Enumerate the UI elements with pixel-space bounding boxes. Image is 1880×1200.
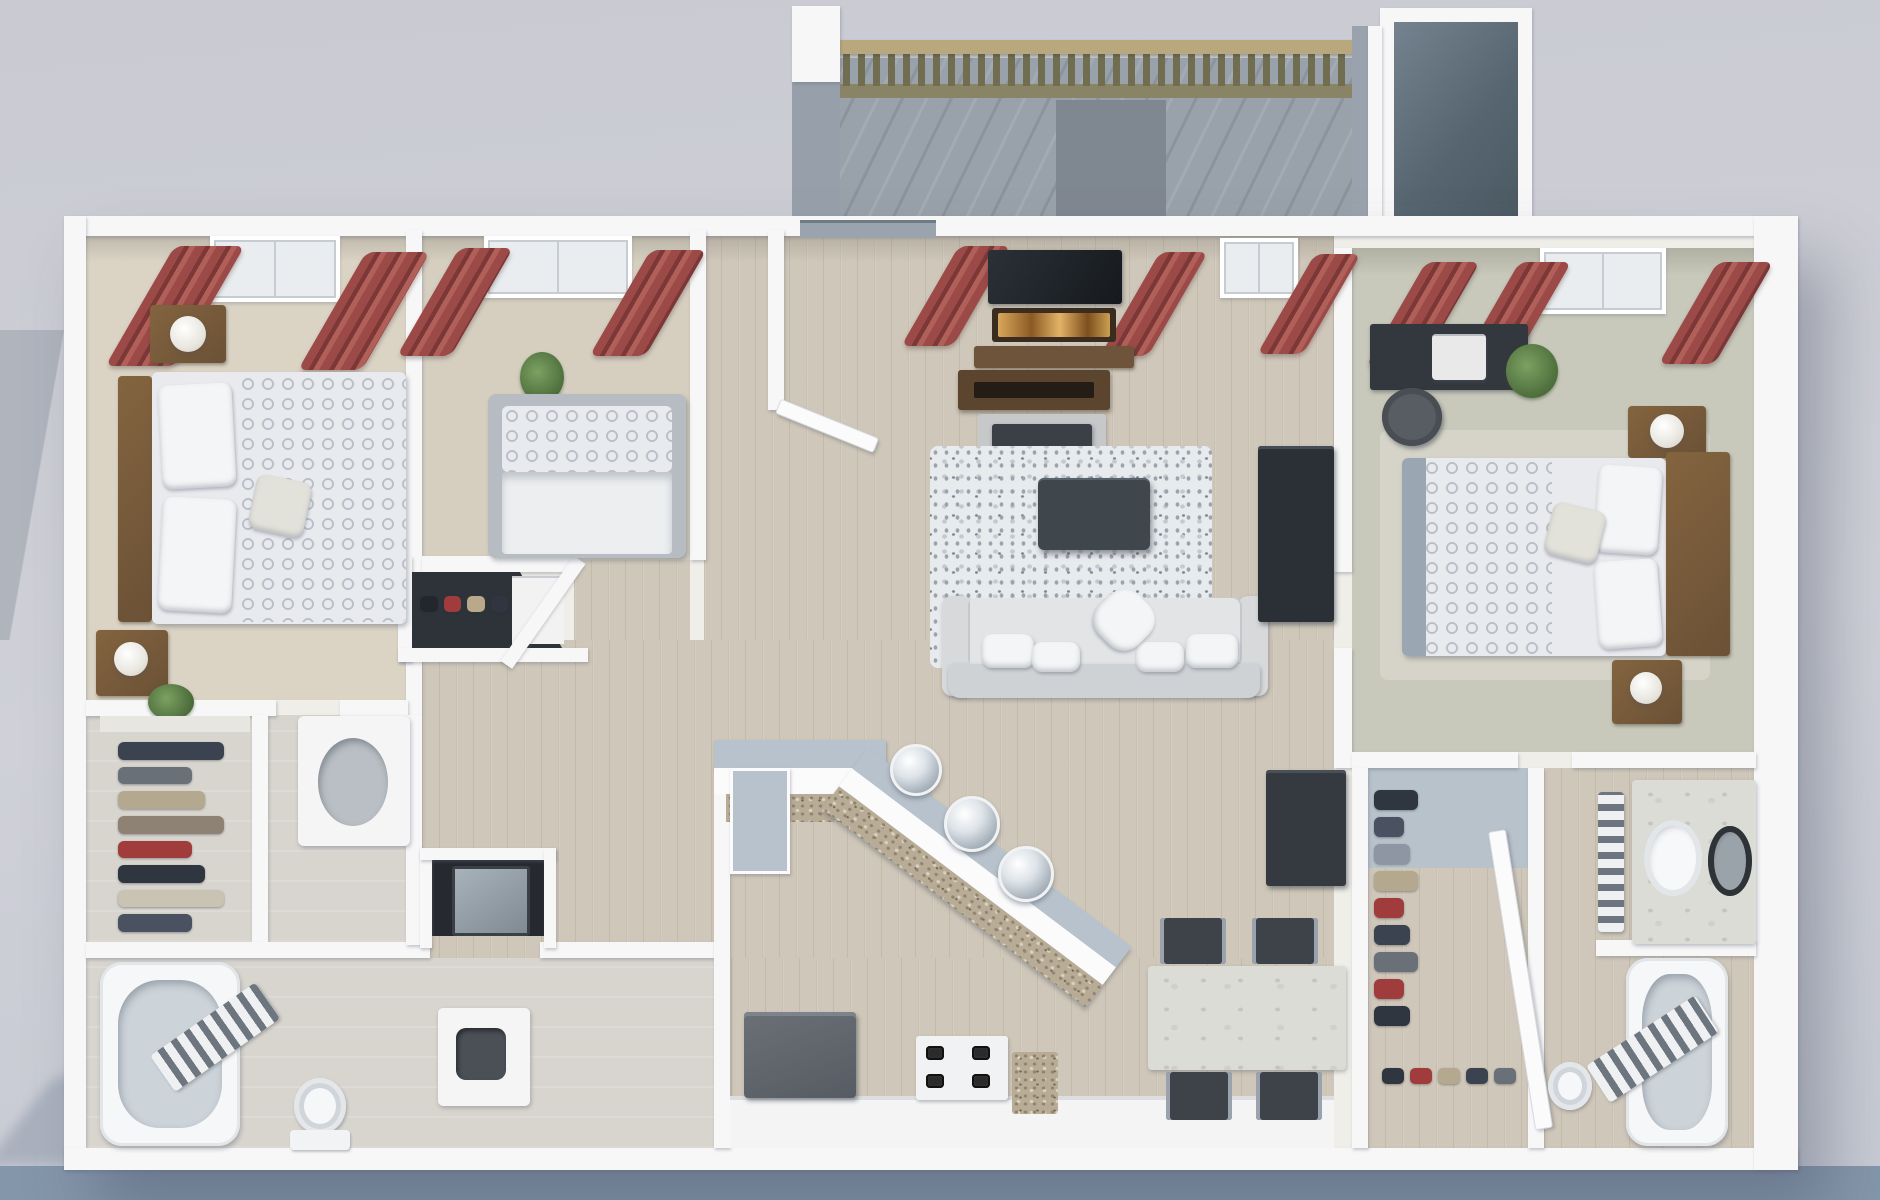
wall-closet1-vanity — [252, 715, 268, 945]
wall-b1-suite-b — [340, 700, 408, 716]
wall-kitchen-left — [714, 765, 730, 1148]
stove-burner-2 — [972, 1046, 990, 1060]
wall-living-b3-upper — [1334, 248, 1352, 572]
b1-headboard — [118, 376, 152, 622]
ground-band — [0, 1166, 1880, 1200]
stove — [916, 1036, 1008, 1100]
floorplan-render — [0, 0, 1880, 1200]
buffet-cabinet — [1266, 770, 1346, 886]
closet2-shoes — [1382, 1068, 1522, 1088]
clothing-item — [1382, 1068, 1404, 1084]
clothing-item — [118, 890, 224, 908]
refrigerator — [744, 1012, 856, 1098]
b2-duvet — [502, 472, 672, 554]
toilet1-tank — [290, 1130, 350, 1150]
b3-lamp-bottom — [1630, 672, 1662, 704]
toilet1-bowl — [294, 1078, 346, 1134]
closet1-clothes — [118, 742, 230, 932]
tv-panel — [988, 250, 1122, 304]
closet1-shelf-strip — [100, 716, 250, 732]
utility-wall-right — [544, 848, 556, 948]
vanity-bath1-sink — [456, 1028, 506, 1080]
b2-pillow-block — [502, 406, 672, 472]
mantel-shelf — [974, 346, 1134, 368]
clothing-item — [118, 791, 205, 809]
balcony-dark-mat — [1056, 100, 1166, 216]
b3-plant — [1506, 344, 1558, 398]
wall-living-b3-lower — [1334, 648, 1352, 768]
utility-wall-top — [420, 848, 556, 860]
b3-printer — [1432, 334, 1486, 380]
towel-rack-2 — [1598, 792, 1624, 932]
b3-lamp-top — [1650, 414, 1684, 448]
vanity2-sink-round — [1708, 826, 1752, 896]
clothing-item — [118, 767, 192, 785]
b1-pillow-1 — [157, 382, 236, 490]
clothing-item — [1374, 817, 1404, 837]
b1-pillow-2 — [157, 496, 237, 614]
balcony-top-rail — [798, 40, 1370, 54]
clothing-item — [1374, 925, 1410, 945]
media-shelf-slot — [974, 382, 1094, 398]
utility-wall-left — [420, 848, 432, 948]
storage-closet-interior — [1394, 22, 1518, 238]
wall-bath1-top-b — [540, 942, 714, 958]
clothing-item — [420, 596, 438, 612]
clothing-item — [1374, 952, 1418, 972]
bedroom2-window — [484, 236, 632, 298]
clothing-item — [118, 841, 192, 859]
balcony-rail-base — [798, 84, 1370, 98]
clothing-item — [1494, 1068, 1516, 1084]
clothing-item — [1466, 1068, 1488, 1084]
b3-headboard — [1666, 452, 1730, 656]
sofa-pillow-3 — [1136, 642, 1184, 672]
clothing-item — [1374, 898, 1404, 918]
wall-b3-bottom-b — [1572, 752, 1756, 768]
wall-b2-right — [690, 230, 706, 560]
wall-bath1-top-a — [86, 942, 430, 958]
b1-lamp-bottom — [114, 642, 148, 676]
kitchen-side-counter — [730, 768, 790, 874]
clothing-item — [118, 742, 224, 760]
sofa-back — [948, 664, 1260, 698]
dining-chair-4 — [1256, 1072, 1322, 1120]
dining-table — [1148, 966, 1346, 1070]
vanity1-basin — [318, 738, 388, 826]
bar-stool-3 — [998, 846, 1054, 902]
stove-burner-3 — [926, 1074, 944, 1088]
clothing-item — [491, 596, 509, 612]
b3-pillow-1 — [1593, 464, 1663, 556]
dining-chair-1 — [1160, 918, 1226, 964]
dining-chair-3 — [1166, 1072, 1232, 1120]
sofa-pillow-4 — [1186, 634, 1238, 668]
wall-entry-stub — [768, 230, 784, 410]
wall-b3-bottom-a — [1352, 752, 1518, 768]
fireplace-fire — [998, 313, 1110, 337]
sofa-pillow-2 — [1032, 642, 1080, 672]
b1-lamp-top — [170, 316, 206, 352]
vanity2-sink-oval — [1644, 820, 1702, 896]
dining-chair-2 — [1252, 918, 1318, 964]
clothing-item — [1374, 979, 1404, 999]
clothing-item — [1374, 790, 1418, 810]
clothing-item — [1374, 1006, 1410, 1026]
b2-closet-clothes — [420, 596, 508, 618]
kitchen-granite-block — [1012, 1052, 1058, 1114]
clothing-item — [118, 816, 224, 834]
balcony-post — [792, 6, 840, 82]
balcony-balusters — [798, 52, 1370, 86]
bar-stool-1 — [890, 744, 942, 796]
balcony-right-wall — [1368, 26, 1382, 216]
clothing-item — [118, 865, 205, 883]
balcony-post-shadow — [792, 80, 840, 216]
wall-closet2-left — [1352, 768, 1368, 1148]
b3-office-chair — [1382, 388, 1442, 446]
sliding-door-threshold — [800, 220, 936, 238]
wall-b2-bottom — [422, 556, 574, 572]
living-window — [1220, 238, 1298, 298]
b3-pillow-2 — [1593, 558, 1663, 650]
wall-b2closet-bottom — [398, 648, 588, 662]
coffee-table — [1038, 478, 1150, 550]
stove-burner-4 — [972, 1074, 990, 1088]
clothing-item — [1374, 871, 1418, 891]
clothing-item — [1410, 1068, 1432, 1084]
bar-stool-2 — [944, 796, 1000, 852]
clothing-item — [1438, 1068, 1460, 1084]
media-console-right — [1258, 446, 1334, 622]
b1-plant — [148, 684, 194, 720]
outer-wall-left — [64, 216, 86, 1168]
stove-burner-1 — [926, 1046, 944, 1060]
sofa-pillow-1 — [982, 634, 1034, 668]
closet2-clothes — [1374, 790, 1420, 1060]
clothing-item — [1374, 844, 1410, 864]
outer-wall-bottom — [64, 1148, 1798, 1170]
b1-accent-pillow — [247, 473, 313, 539]
outer-wall-right — [1754, 216, 1798, 1170]
clothing-item — [444, 596, 462, 612]
clothing-item — [467, 596, 485, 612]
clothing-item — [118, 914, 192, 932]
b3-duvet-fold — [1402, 458, 1426, 656]
toilet2-bowl — [1548, 1062, 1592, 1110]
utility-washer — [452, 866, 530, 936]
